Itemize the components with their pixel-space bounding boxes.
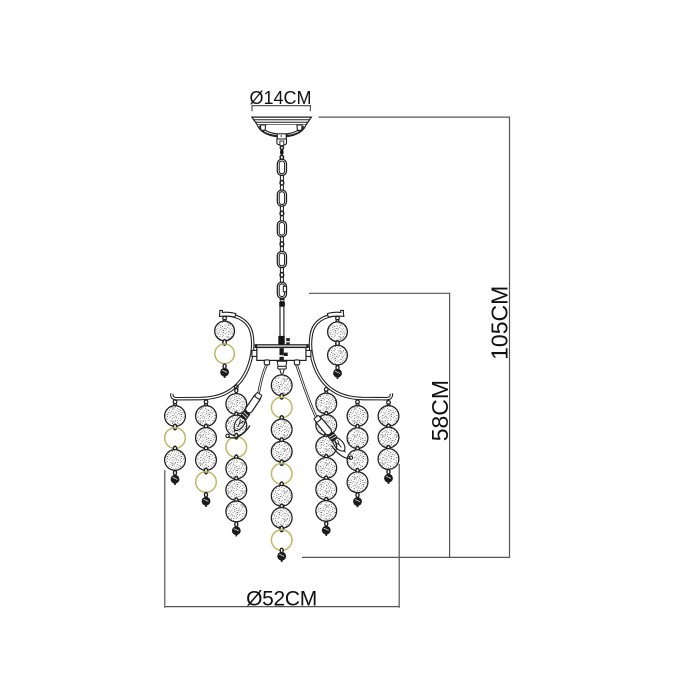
svg-text:105CM: 105CM	[487, 286, 513, 360]
svg-text:Ø14CM: Ø14CM	[249, 88, 311, 108]
svg-text:Ø52CM: Ø52CM	[246, 588, 317, 611]
svg-text:58CM: 58CM	[427, 380, 453, 441]
